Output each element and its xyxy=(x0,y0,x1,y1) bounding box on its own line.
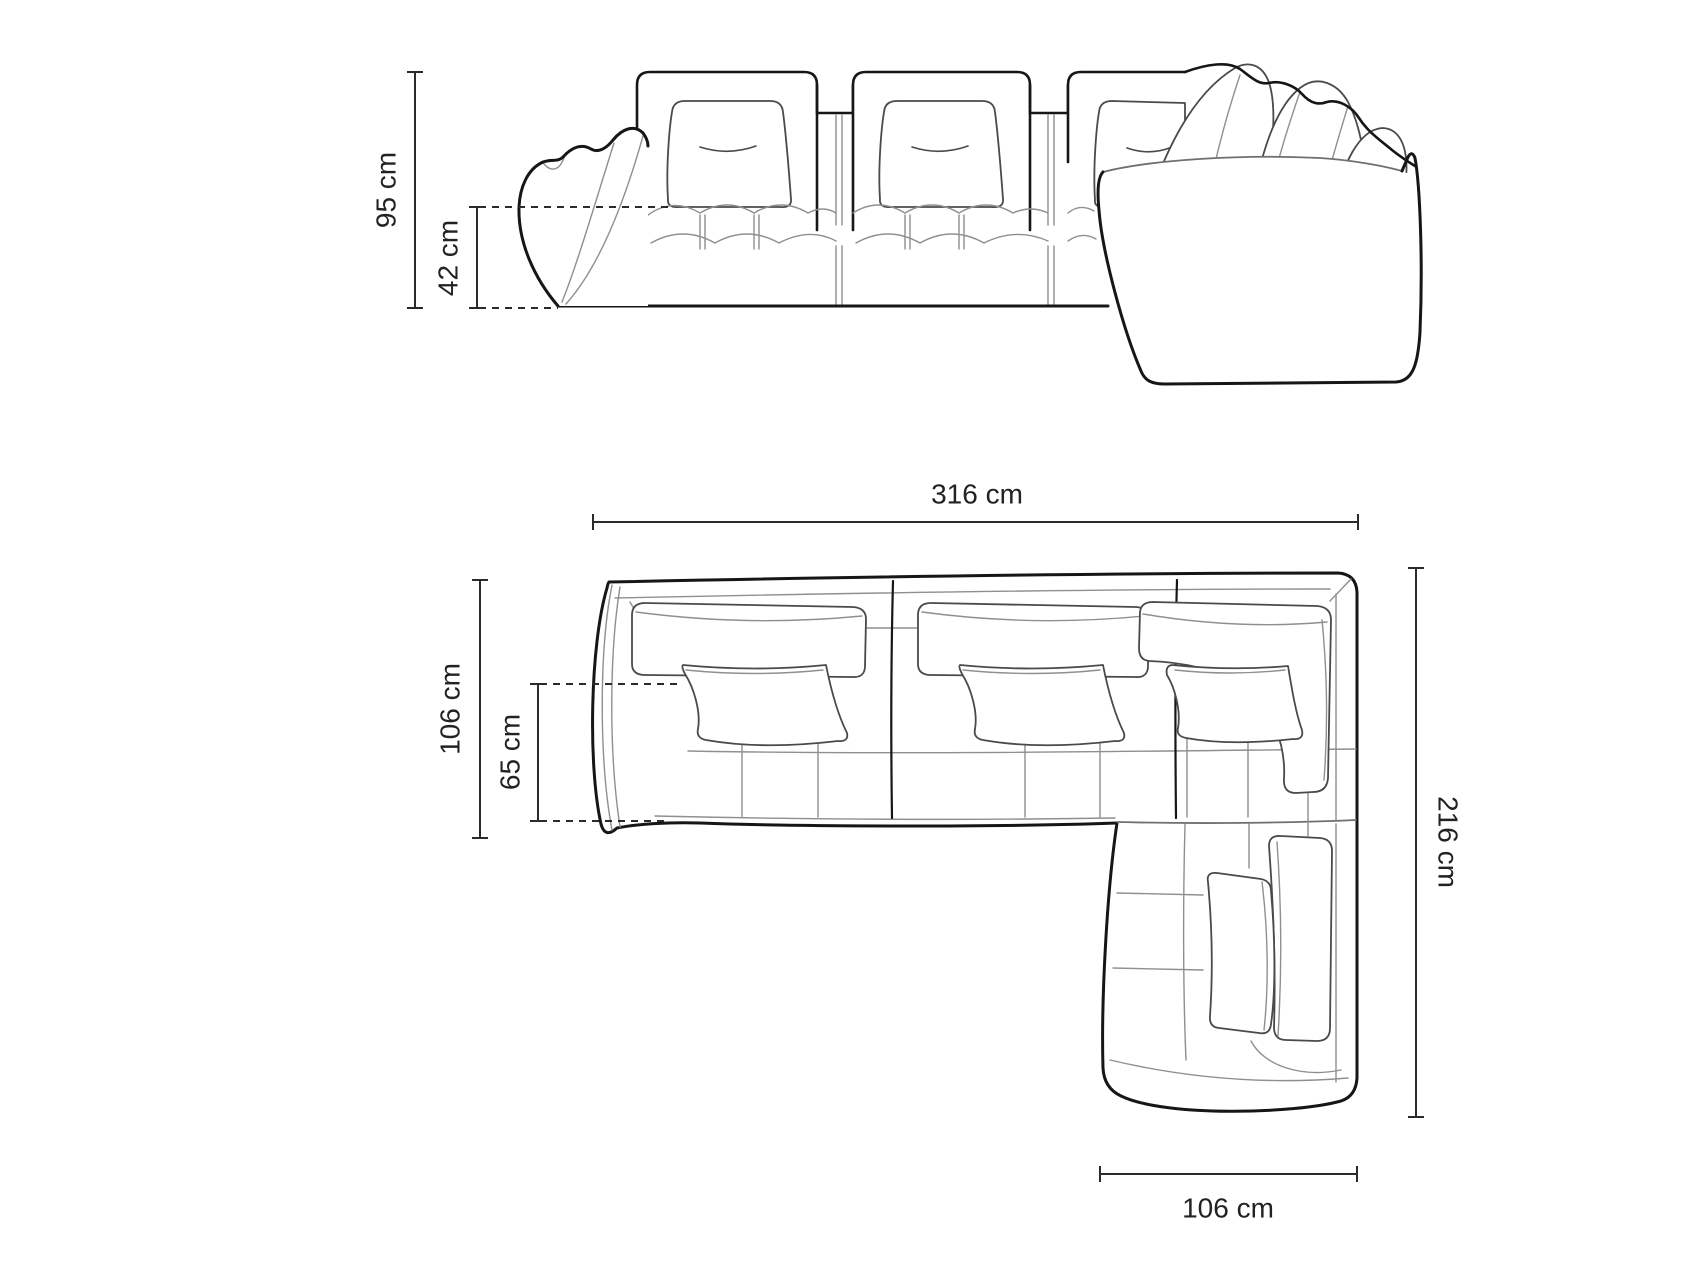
front-view-drawing: 95 cm 42 cm xyxy=(370,64,1421,384)
top-throw-pillow-3 xyxy=(1167,665,1303,742)
front-back-pillow-2 xyxy=(879,101,1003,207)
dim-total-width: 316 cm xyxy=(593,478,1358,530)
dim-label-seat-depth: 65 cm xyxy=(494,714,525,790)
front-seat-tufting-3 xyxy=(1068,207,1096,241)
diagram-canvas: 95 cm 42 cm xyxy=(0,0,1708,1281)
dim-chaise-width: 106 cm xyxy=(1100,1166,1357,1223)
front-left-arm xyxy=(519,128,648,306)
dim-label-total-width: 316 cm xyxy=(931,478,1023,509)
top-throw-pillow-1 xyxy=(682,665,847,745)
front-panel-notch-2 xyxy=(1030,85,1068,225)
dim-total-length: 216 cm xyxy=(1408,568,1464,1117)
top-view-drawing: 316 cm 106 cm 65 cm 216 cm 106 cm xyxy=(434,478,1463,1223)
sofa-dimension-diagram: 95 cm 42 cm xyxy=(0,0,1708,1281)
top-chaise-pillow xyxy=(1208,873,1275,1033)
top-back-cushion-2 xyxy=(918,603,1149,677)
dim-total-depth: 106 cm xyxy=(434,580,488,838)
dim-label-total-depth: 106 cm xyxy=(434,663,465,755)
dim-total-height: 95 cm xyxy=(370,72,423,308)
dim-label-seat-height: 42 cm xyxy=(432,220,463,296)
front-seat-seam-1 xyxy=(836,246,842,305)
front-back-pillow-1 xyxy=(667,101,791,207)
dim-label-chaise-width: 106 cm xyxy=(1182,1192,1274,1223)
top-back-cushion-1 xyxy=(632,603,866,677)
dim-label-total-length: 216 cm xyxy=(1433,796,1464,888)
front-seat-seam-2 xyxy=(1048,246,1054,305)
top-throw-pillow-2 xyxy=(959,665,1124,745)
front-panel-notch-1 xyxy=(817,85,853,225)
dim-label-total-height: 95 cm xyxy=(370,152,401,228)
front-corner-unit-panel xyxy=(1098,154,1422,384)
